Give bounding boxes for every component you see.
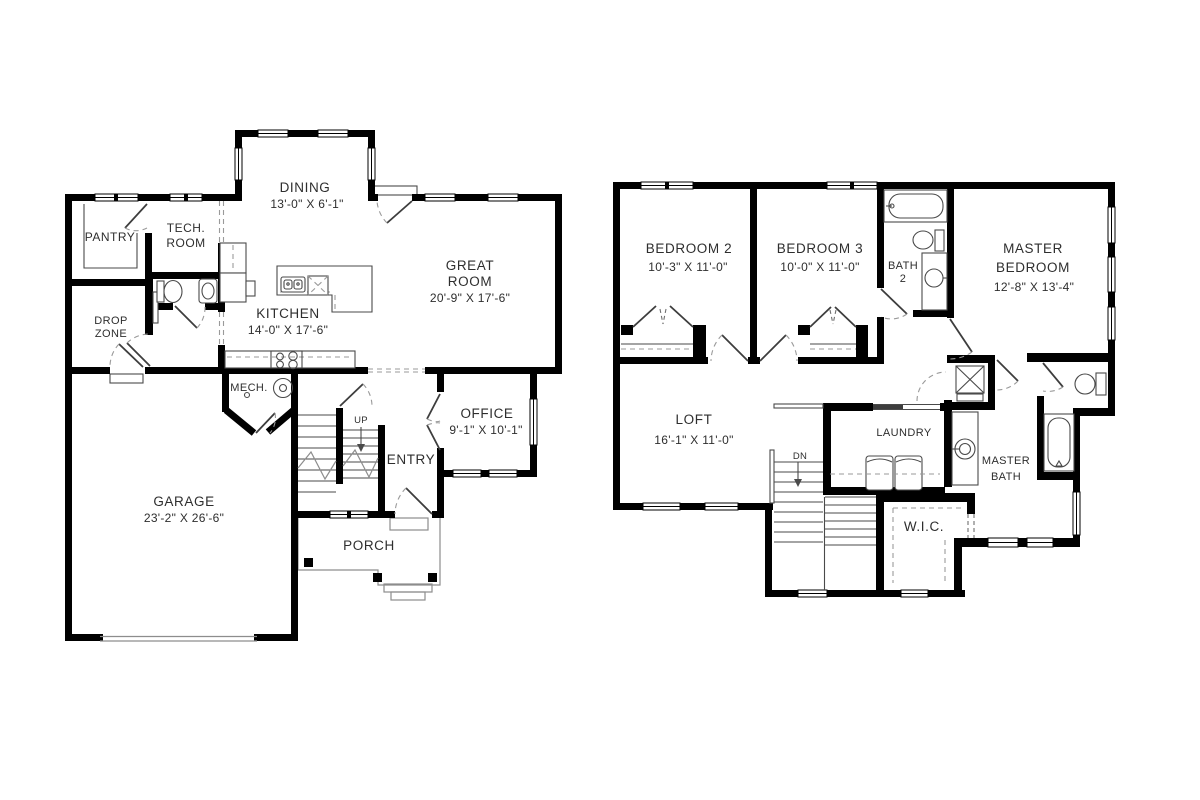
room-dims-bedroom3: 10'-0" X 11'-0" — [780, 260, 859, 274]
room-label-great-2: ROOM — [448, 274, 492, 289]
toilet-symbol — [157, 281, 182, 303]
room-label-bath2-1: BATH — [888, 260, 918, 272]
room-label-entry: ENTRY — [387, 452, 436, 467]
toilet-symbol — [913, 230, 944, 251]
bath2-fixtures — [884, 190, 947, 310]
kitchen-counter — [225, 351, 355, 369]
stair-railing — [774, 404, 823, 408]
room-dims-dining: 13'-0" X 6'-1" — [270, 197, 343, 211]
room-dims-kitchen: 14'-0" X 17'-6" — [248, 323, 328, 337]
window — [1073, 492, 1080, 535]
porch-post — [304, 558, 313, 567]
window — [988, 538, 1018, 547]
vanity-sink-symbol — [922, 253, 947, 310]
window — [330, 511, 368, 518]
front-door — [406, 488, 432, 514]
room-label-mech: MECH. — [230, 382, 267, 394]
room-dims-loft: 16'-1" X 11'-0" — [654, 433, 733, 447]
refrigerator-symbol — [220, 243, 246, 273]
washer-symbol — [866, 456, 893, 490]
office-french-door — [427, 394, 440, 419]
room-label-tech-2: ROOM — [166, 236, 205, 250]
room-dims-great: 20'-9" X 17'-6" — [430, 291, 510, 305]
mech-angled-wall — [226, 410, 254, 433]
second-floor-plan: BEDROOM 2 10'-3" X 11'-0" BEDROOM 3 10'-… — [613, 182, 1115, 597]
stairs-up-label: UP — [354, 415, 368, 426]
room-label-master-2: BEDROOM — [996, 260, 1070, 275]
window — [643, 503, 680, 510]
laundry-pocket-door — [873, 405, 940, 410]
pantry-door — [125, 204, 147, 228]
vanity-sink-symbol — [952, 412, 978, 485]
entry-step — [390, 518, 428, 530]
master-bath-door-swing — [917, 372, 946, 401]
porch-post — [373, 573, 382, 582]
window — [530, 399, 537, 445]
window — [235, 148, 242, 180]
room-label-office: OFFICE — [460, 406, 513, 421]
first-floor-plan: PANTRY TECH. ROOM DINING 13'-0" X 6'-1" … — [65, 130, 562, 641]
bathtub-symbol — [884, 190, 947, 222]
mech-angled-wall — [268, 409, 295, 432]
stair-break-line — [298, 452, 336, 479]
room-label-drop-1: DROP — [94, 315, 127, 327]
window — [705, 503, 738, 510]
window — [368, 148, 375, 180]
room-label-laundry: LAUNDRY — [876, 427, 931, 439]
room-dims-garage: 23'-2" X 26'-6" — [144, 511, 224, 525]
kitchen-cabinet — [220, 273, 246, 302]
dishwasher-symbol — [308, 276, 328, 295]
room-label-bedroom2: BEDROOM 2 — [646, 241, 732, 256]
room-label-dining: DINING — [280, 180, 331, 195]
room-label-kitchen: KITCHEN — [256, 306, 319, 321]
powder-door — [175, 306, 197, 328]
bedroom-closets — [621, 306, 856, 349]
window — [425, 194, 455, 201]
room-label-drop-2: ZONE — [95, 328, 127, 340]
window — [798, 590, 827, 597]
window — [1108, 257, 1115, 292]
room-label-loft: LOFT — [676, 412, 713, 427]
window — [453, 470, 481, 477]
window — [641, 182, 693, 189]
window — [901, 590, 928, 597]
laundry-fixtures — [830, 456, 940, 490]
room-label-tech-1: TECH. — [167, 221, 206, 235]
stair-hall-door — [340, 384, 363, 406]
stair-railing — [770, 450, 774, 503]
patio-landing — [370, 186, 417, 195]
shower-symbol — [956, 366, 984, 401]
dryer-symbol — [895, 456, 922, 490]
window — [170, 194, 202, 201]
patio-door — [387, 201, 412, 223]
room-dims-office: 9'-1" X 10'-1" — [449, 423, 522, 437]
master-bedroom-door — [997, 360, 1018, 381]
garage-step — [110, 374, 143, 383]
stairs-down-label: DN — [793, 451, 807, 462]
window — [1108, 307, 1115, 340]
room-dims-master: 12'-8" X 13'-4" — [994, 280, 1074, 294]
kitchen-cabinet — [246, 281, 255, 296]
porch-post — [428, 573, 437, 582]
stair-direction-arrow — [794, 462, 802, 487]
room-label-garage: GARAGE — [153, 494, 214, 509]
master-bedroom-hall-door — [950, 319, 972, 352]
bedroom2-door — [722, 335, 748, 361]
office-french-door — [427, 425, 440, 450]
window — [488, 194, 518, 201]
window — [258, 130, 288, 137]
porch-step — [391, 592, 425, 600]
bedroom3-closet — [810, 307, 856, 349]
room-label-great-1: GREAT — [446, 258, 495, 273]
floor-plan-canvas: PANTRY TECH. ROOM DINING 13'-0" X 6'-1" … — [0, 0, 1200, 800]
room-label-wic: W.I.C. — [904, 519, 944, 534]
room-label-masterbath-1: MASTER — [982, 455, 1030, 467]
garage-door — [100, 637, 257, 642]
room-label-bath2-2: 2 — [900, 273, 907, 285]
room-label-porch: PORCH — [343, 538, 395, 553]
window — [1108, 207, 1115, 243]
room-label-pantry: PANTRY — [85, 230, 136, 244]
window — [318, 130, 348, 137]
island-sink-symbol — [281, 277, 305, 292]
bath2-door — [881, 289, 907, 314]
bedroom3-door — [760, 335, 786, 361]
room-label-bedroom3: BEDROOM 3 — [777, 241, 863, 256]
toilet-symbol — [1075, 373, 1106, 395]
room-label-master-1: MASTER — [1003, 241, 1063, 256]
toilet-room-door — [1043, 363, 1063, 387]
room-dims-bedroom2: 10'-3" X 11'-0" — [648, 260, 727, 274]
window — [489, 470, 517, 477]
sink-symbol — [199, 279, 217, 303]
master-bath-fixtures — [952, 366, 1106, 485]
floor-plan-page: PANTRY TECH. ROOM DINING 13'-0" X 6'-1" … — [0, 0, 1200, 800]
stair-direction-arrow — [357, 427, 365, 452]
window — [827, 182, 877, 189]
window — [95, 194, 138, 201]
room-label-masterbath-2: BATH — [991, 471, 1021, 483]
bathtub-symbol — [1044, 414, 1074, 471]
window — [1027, 538, 1053, 547]
